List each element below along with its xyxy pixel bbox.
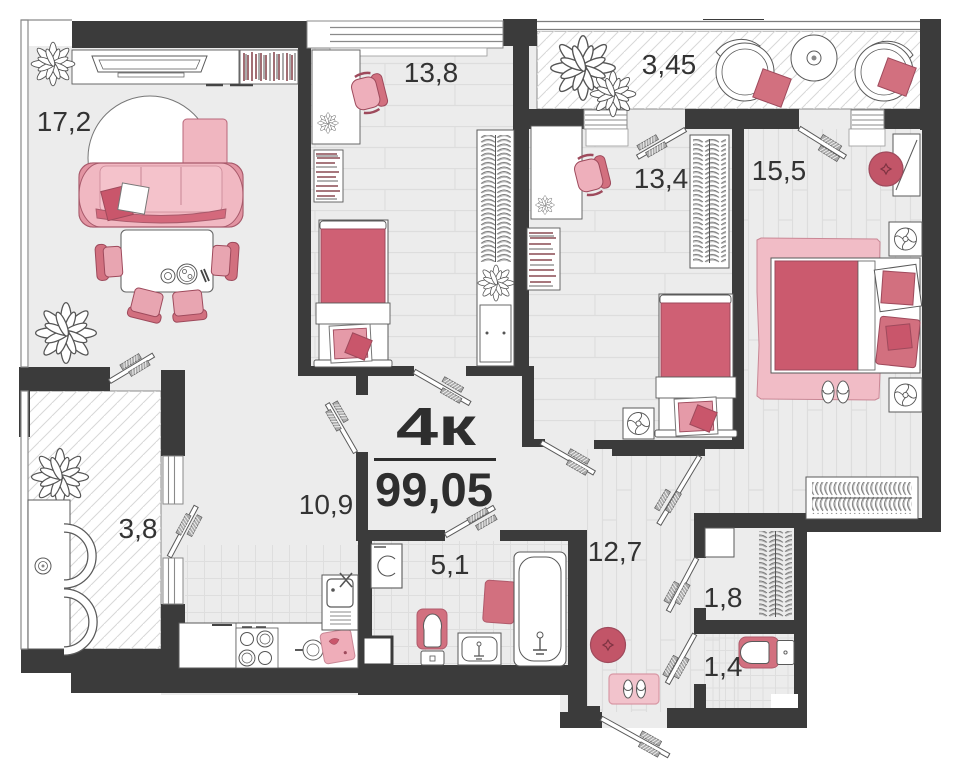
svg-text:3,8: 3,8 [119,513,158,544]
svg-text:15,5: 15,5 [752,155,807,186]
svg-text:3,45: 3,45 [642,49,697,80]
svg-text:1,8: 1,8 [704,582,743,613]
svg-text:5,1: 5,1 [431,549,470,580]
svg-text:17,2: 17,2 [37,106,92,137]
svg-text:13,4: 13,4 [634,163,689,194]
svg-text:12,7: 12,7 [588,536,643,567]
svg-text:4к: 4к [396,397,477,457]
svg-text:13,8: 13,8 [404,57,459,88]
svg-text:99,05: 99,05 [375,463,493,516]
svg-text:1,4: 1,4 [704,651,743,682]
svg-text:10,9: 10,9 [299,489,354,520]
